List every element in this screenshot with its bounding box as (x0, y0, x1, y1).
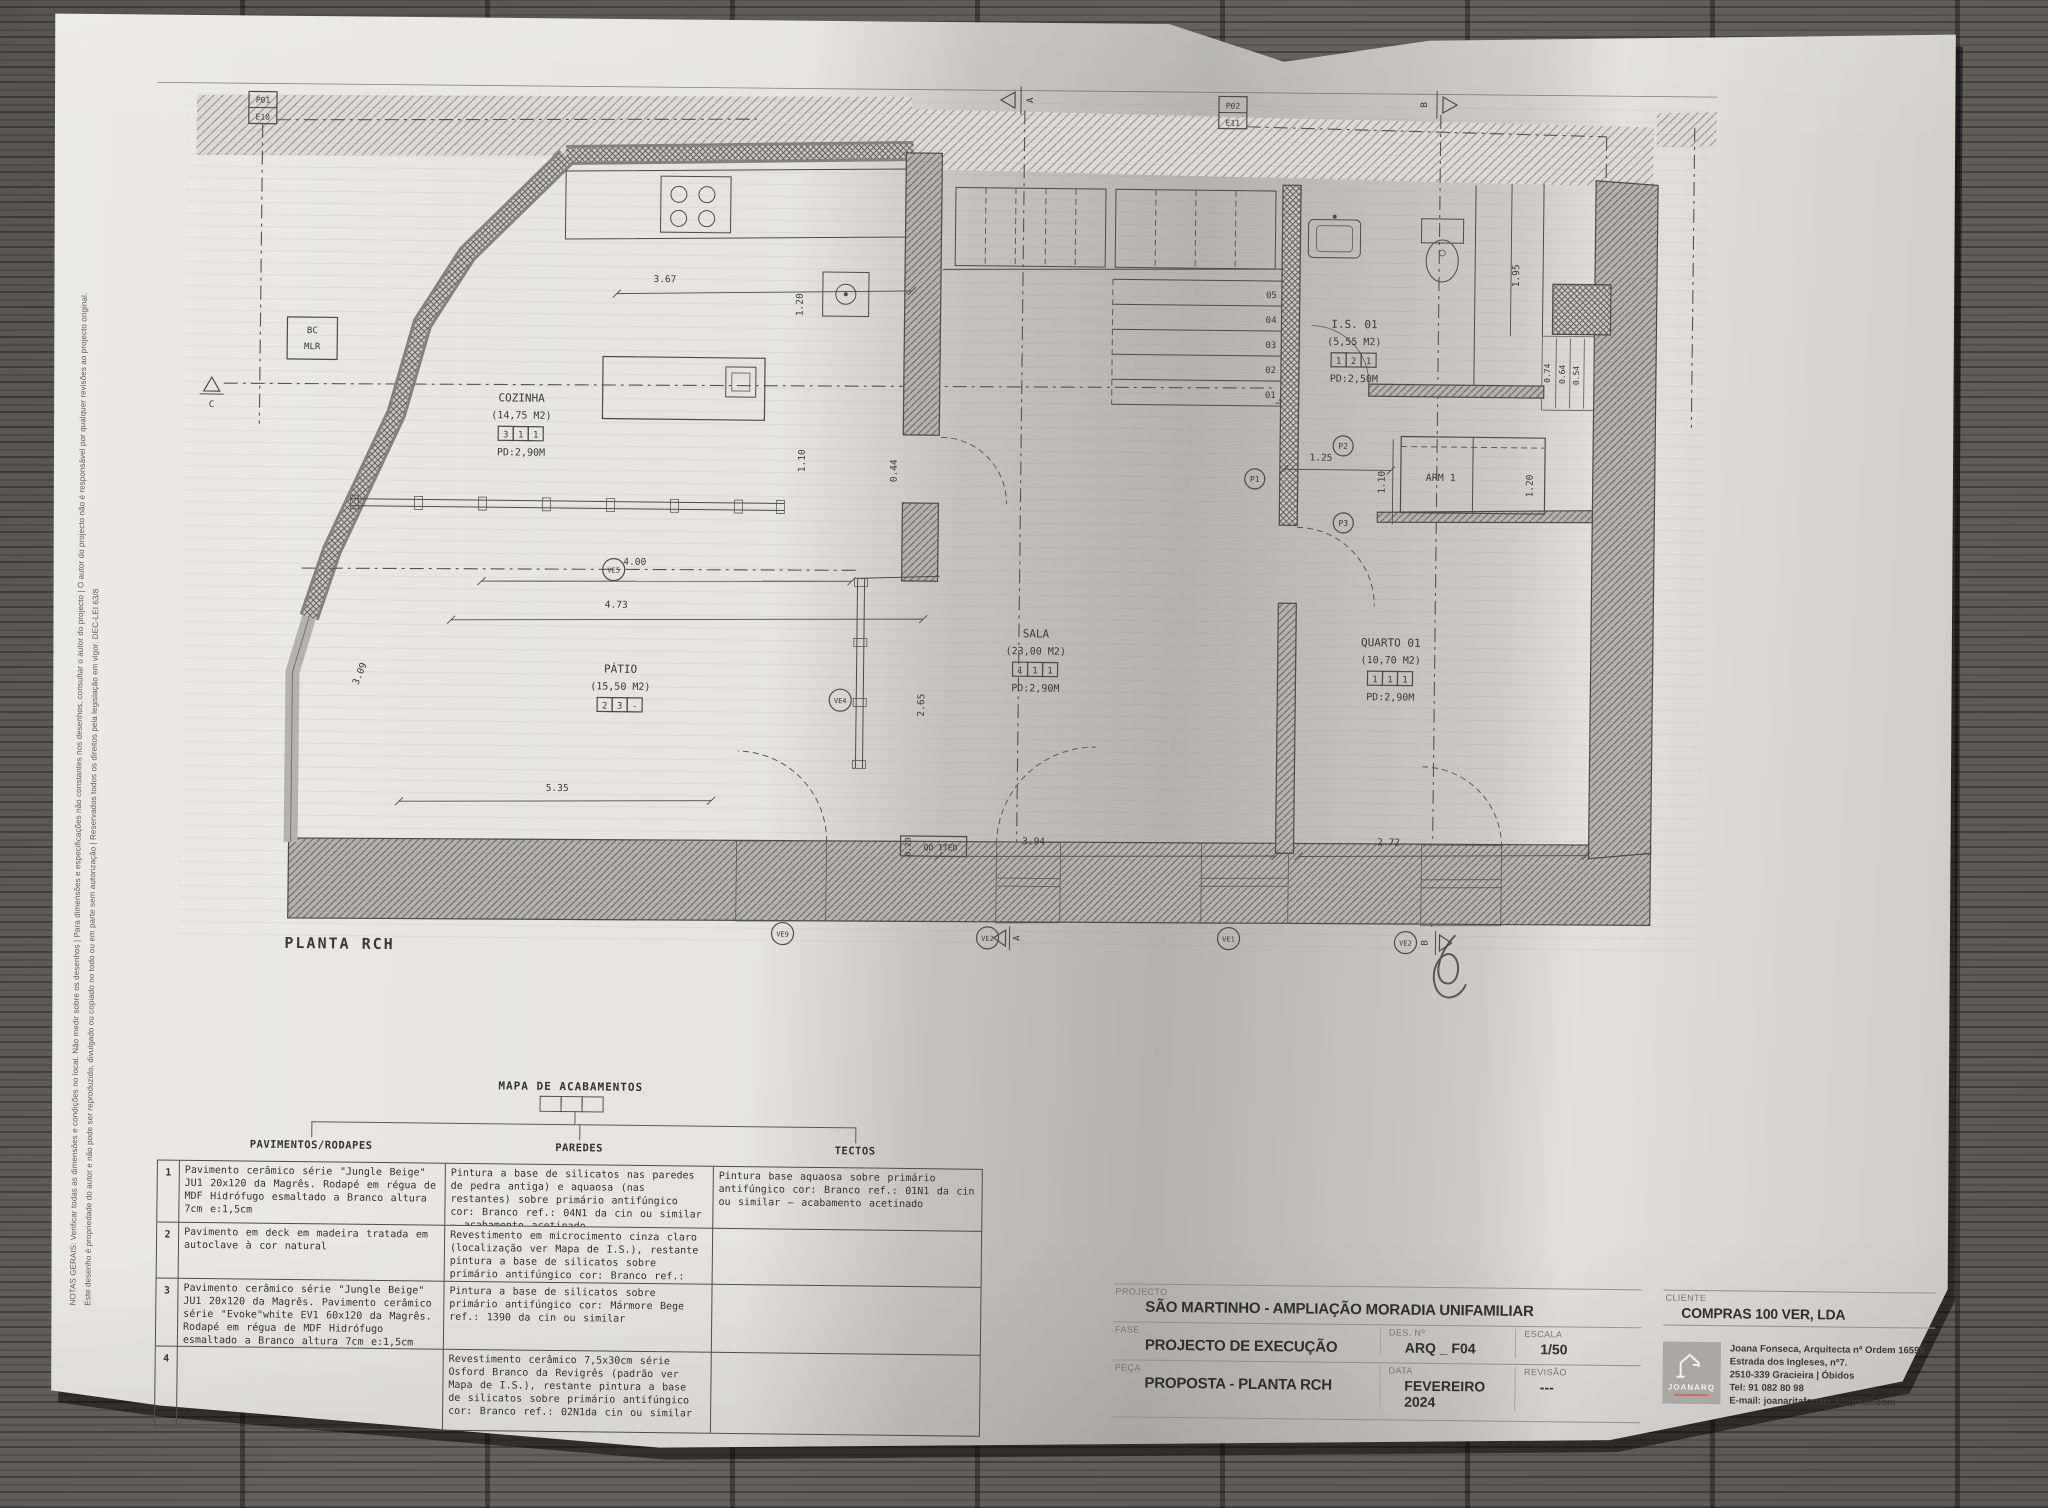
row2-num: 2 (157, 1222, 180, 1278)
architect-line5: E-mail: joanaritafonseca@gmail.com (1729, 1394, 1924, 1409)
title-block-client: CLIENTE COMPRAS 100 VER, LDA JOANARQ Joa… (1662, 1290, 1935, 1410)
peca-value: PROPOSTA - PLANTA RCH (1114, 1372, 1379, 1394)
floor-plan: P01 E10 P02 E11 C C (147, 70, 1717, 1018)
des-label: DES. Nº (1389, 1327, 1516, 1338)
photo-of-architectural-drawing: NOTAS GERAIS: Verificar todas as dimensõ… (0, 0, 2048, 1508)
revisao-label: REVISÃO (1524, 1367, 1641, 1378)
row1-pavimentos: Pavimento cerâmico série "Jungle Beige" … (179, 1161, 446, 1226)
row1-num: 1 (157, 1160, 180, 1222)
drawing-content: NOTAS GERAIS: Verificar todas as dimensõ… (0, 0, 2048, 1508)
finishes-table-key-box (539, 1096, 602, 1116)
row4-num: 4 (155, 1346, 178, 1426)
row3-num: 3 (156, 1278, 179, 1346)
row1-paredes: Pintura a base de silicatos nas paredes … (445, 1164, 714, 1229)
col-header-paredes: PAREDES (555, 1142, 603, 1155)
general-notes: NOTAS GERAIS: Verificar todas as dimensõ… (65, 186, 108, 1306)
row3-pavimentos: Pavimento cerâmico série "Jungle Beige" … (178, 1279, 445, 1350)
row2-paredes: Revestimento em microcimento cinza claro… (445, 1226, 714, 1285)
row1-tectos: Pintura base aquaosa sobre primário anti… (713, 1167, 982, 1232)
row3-tectos (712, 1285, 981, 1356)
title-block-fields: PROJECTO SÃO MARTINHO - AMPLIAÇÃO MORADI… (1112, 1283, 1641, 1423)
finishes-table-title: MAPA DE ACABAMENTOS (498, 1079, 643, 1094)
row2-tectos (713, 1229, 982, 1288)
house-icon (1675, 1350, 1709, 1380)
title-block: PROJECTO SÃO MARTINHO - AMPLIAÇÃO MORADI… (1112, 1283, 1936, 1467)
cliente-value: COMPRAS 100 VER, LDA (1665, 1303, 1935, 1324)
data-label: DATA (1388, 1365, 1515, 1376)
row3-paredes: Pintura a base de silicatos sobre primár… (444, 1282, 713, 1353)
joanarq-logo: JOANARQ (1662, 1342, 1721, 1405)
escala-value: 1/50 (1524, 1339, 1641, 1358)
row4-tectos (711, 1353, 980, 1436)
col-header-tectos: TECTOS (835, 1145, 876, 1157)
escala-label: ESCALA (1524, 1329, 1641, 1340)
des-value: ARQ _ F04 (1389, 1337, 1516, 1356)
col-header-pavimentos: PAVIMENTOS/RODAPES (250, 1139, 373, 1152)
data-value: FEVEREIRO 2024 (1388, 1375, 1515, 1410)
fase-value: PROJECTO DE EXECUÇÃO (1115, 1334, 1380, 1356)
revisao-value: --- (1524, 1377, 1641, 1396)
finishes-grid: 1 Pavimento cerâmico série "Jungle Beige… (154, 1159, 983, 1436)
architect-info: Joana Fonseca, Arquitecta nº Ordem 16595… (1729, 1342, 1925, 1409)
finishes-table: MAPA DE ACABAMENTOS PAVIMENTOS/RODAPES P… (154, 1075, 984, 1446)
signature (1415, 925, 1486, 1016)
scan-ruling-texture (178, 85, 1710, 952)
logo-text: JOANARQ (1668, 1382, 1715, 1392)
row4-paredes: Revestimento cerâmico 7,5x30cm série Osf… (443, 1350, 712, 1433)
row2-pavimentos: Pavimento em deck em madeira tratada em … (179, 1223, 446, 1282)
row4-pavimentos (177, 1347, 444, 1430)
